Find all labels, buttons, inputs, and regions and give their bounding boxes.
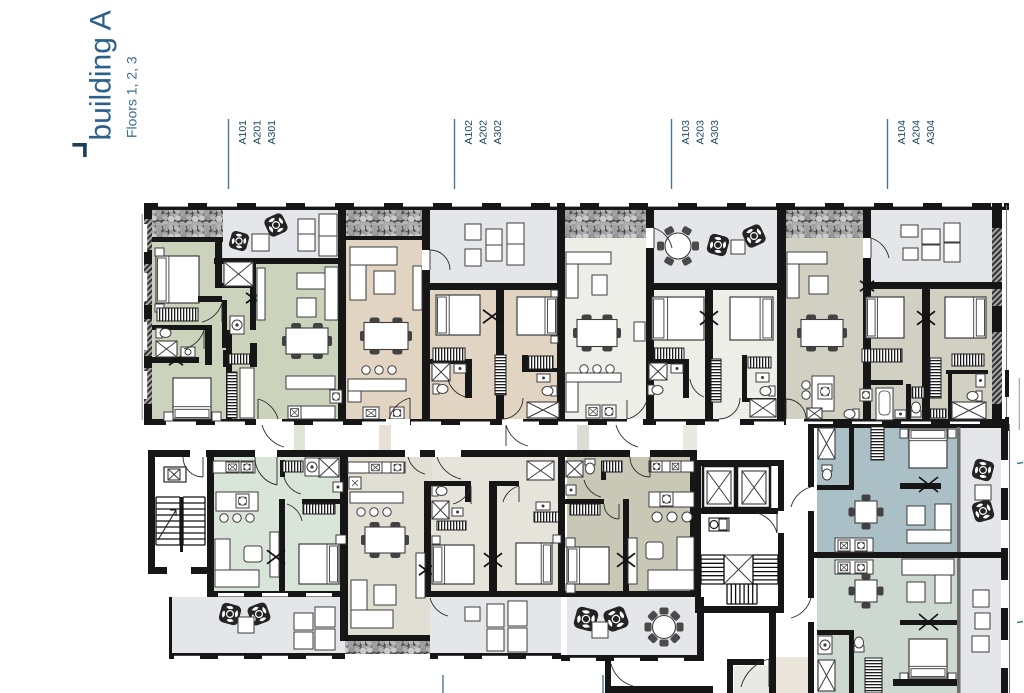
svg-text:A202: A202 xyxy=(478,120,490,145)
svg-text:A101: A101 xyxy=(237,120,249,145)
svg-text:A102: A102 xyxy=(463,120,475,145)
svg-text:A204: A204 xyxy=(911,120,923,145)
svg-text:building A: building A xyxy=(85,10,118,140)
svg-text:A201: A201 xyxy=(252,120,264,145)
svg-text:A304: A304 xyxy=(925,120,937,145)
svg-text:A203: A203 xyxy=(695,120,707,145)
svg-text:A302: A302 xyxy=(492,120,504,145)
svg-text:Floors 1, 2, 3: Floors 1, 2, 3 xyxy=(124,56,140,138)
svg-text:A104: A104 xyxy=(896,120,908,145)
svg-text:A301: A301 xyxy=(266,120,278,145)
svg-text:A103: A103 xyxy=(680,120,692,145)
svg-text:A303: A303 xyxy=(709,120,721,145)
